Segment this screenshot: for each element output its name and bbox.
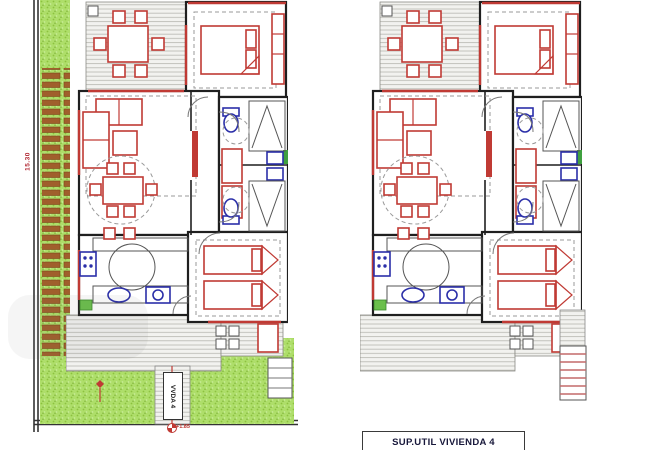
- garden-steps: [268, 358, 292, 398]
- title-box: SUP.UTIL VIVIENDA 4: [362, 431, 525, 450]
- external-stairs: [560, 346, 586, 400]
- walkway-label-text: VVDA 4: [170, 384, 177, 407]
- unit-right-svg: [358, 0, 590, 404]
- unit-left-plot: [28, 0, 308, 436]
- floor-plan-canvas: 15.30 VVDA 4 +1.85 SUP.UTIL VIVIENDA 4: [0, 0, 650, 450]
- unit-right-plan: [358, 0, 590, 404]
- walkway-label-box: VVDA 4: [163, 372, 183, 420]
- boundary-dimension-label: 15.30: [25, 140, 32, 184]
- house-right: [360, 2, 582, 371]
- house-left: [66, 2, 288, 371]
- stair-landing: [560, 310, 585, 346]
- entry-level-marker-label: +1.85: [176, 424, 190, 430]
- pergola-slats: [42, 68, 70, 356]
- unit-left-svg: [28, 0, 308, 436]
- title-box-label: SUP.UTIL VIVIENDA 4: [363, 437, 524, 448]
